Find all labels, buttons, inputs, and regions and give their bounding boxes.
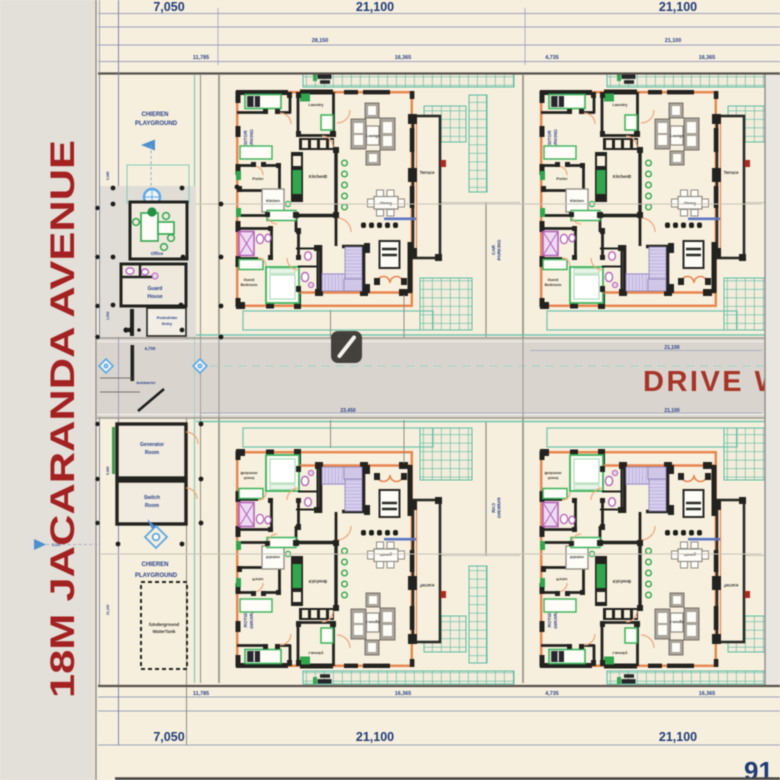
svg-text:4,700: 4,700 [145, 346, 157, 351]
svg-text:Entry: Entry [162, 321, 173, 326]
svg-text:7,050: 7,050 [153, 0, 184, 14]
svg-text:5,985: 5,985 [106, 171, 110, 180]
svg-text:11,785: 11,785 [193, 55, 209, 61]
svg-text:Room: Room [145, 503, 160, 509]
svg-text:1,500: 1,500 [106, 311, 110, 320]
svg-text:/Underground: /Underground [149, 622, 180, 627]
svg-text:21,100: 21,100 [659, 730, 697, 744]
svg-text:WaterTank: WaterTank [153, 629, 176, 634]
svg-text:16,365: 16,365 [395, 55, 412, 61]
svg-text:21,100: 21,100 [106, 605, 110, 615]
svg-text:CHIEREN: CHIEREN [141, 562, 168, 568]
svg-text:House: House [147, 294, 163, 300]
svg-text:PLAYGROUND: PLAYGROUND [135, 121, 178, 127]
svg-text:PLAYGROUND: PLAYGROUND [135, 573, 178, 579]
svg-text:21,100: 21,100 [356, 0, 394, 14]
svg-text:7,050: 7,050 [153, 730, 184, 744]
svg-text:91: 91 [744, 756, 773, 780]
svg-text:16,365: 16,365 [699, 691, 716, 697]
svg-text:16,365: 16,365 [395, 691, 412, 697]
svg-text:Switch: Switch [144, 495, 160, 501]
svg-text:CHIEREN: CHIEREN [141, 112, 168, 118]
svg-text:Pedestrian: Pedestrian [157, 315, 178, 320]
svg-text:5,985: 5,985 [106, 466, 110, 475]
svg-text:28,150: 28,150 [312, 38, 329, 44]
svg-text:18M JACARANDA AVENUE: 18M JACARANDA AVENUE [44, 140, 82, 698]
svg-text:21,100: 21,100 [665, 38, 682, 44]
svg-text:Guard: Guard [148, 286, 163, 292]
svg-text:21,100: 21,100 [659, 0, 697, 14]
svg-text:16,365: 16,365 [699, 55, 716, 61]
svg-text:DRIVE W: DRIVE W [643, 366, 780, 398]
svg-text:Autobarrier: Autobarrier [136, 381, 156, 385]
svg-text:21,100: 21,100 [356, 730, 394, 744]
svg-text:Generator: Generator [140, 442, 164, 448]
svg-text:5,100: 5,100 [52, 543, 61, 547]
svg-text:Office: Office [151, 251, 164, 256]
svg-text:4,735: 4,735 [545, 691, 559, 697]
svg-text:11,785: 11,785 [193, 691, 209, 697]
svg-text:Room: Room [145, 450, 160, 456]
svg-text:4,735: 4,735 [545, 55, 559, 61]
